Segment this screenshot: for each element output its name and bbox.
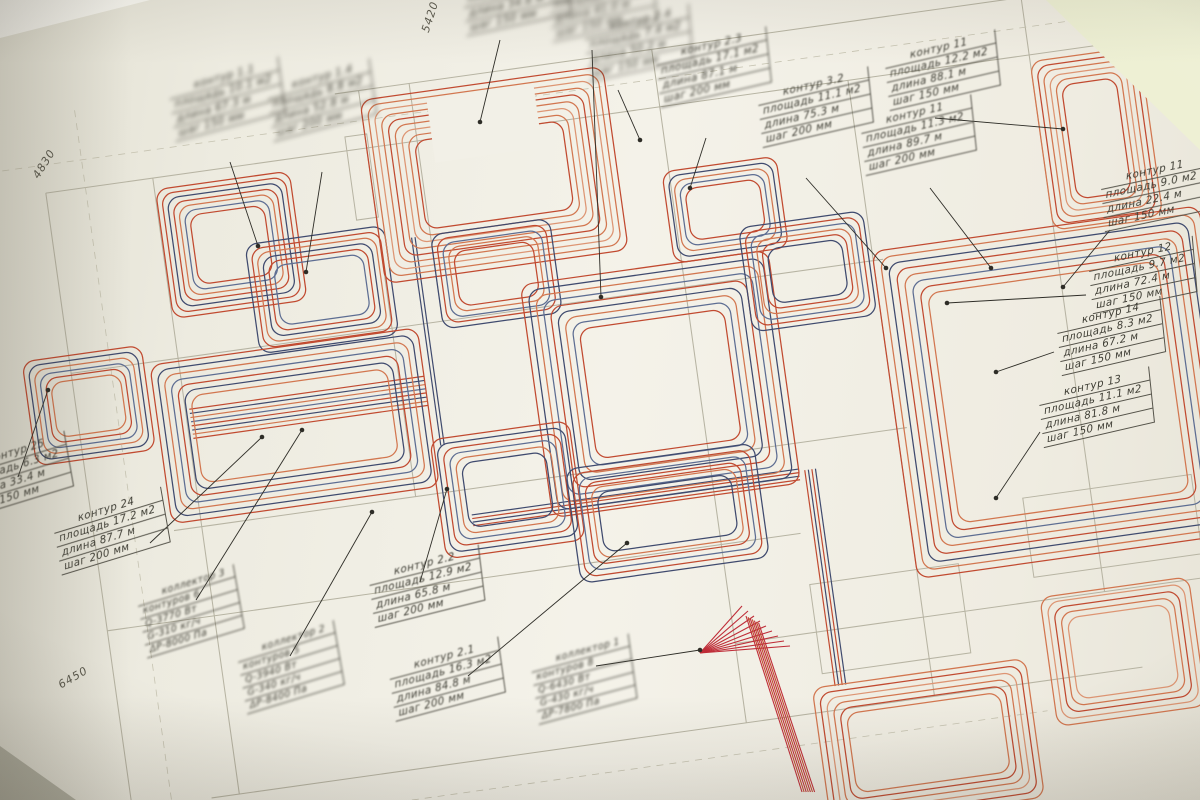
dimension-label: 5420	[419, 0, 441, 34]
tables-layer: контур 1.1площадь 10.1 м2длина 67.3 мшаг…	[0, 0, 1200, 800]
photo-of-heating-plan: контур 1.1площадь 10.1 м2длина 67.3 мшаг…	[0, 0, 1200, 800]
contour-table-annotation: контур 3.2площадь 11.1 м2длина 75.3 мшаг…	[757, 66, 874, 148]
dimension-label: 6450	[56, 664, 90, 691]
contour-table-annotation: контур 13площадь 11.1 м2длина 81.8 мшаг …	[1038, 366, 1155, 448]
dimension-label: 4830	[30, 147, 58, 181]
contour-table-annotation: контур 25площадь 6.3 м2длина 33.4 мшаг 1…	[0, 431, 74, 518]
contour-table-annotation: контур 2.1площадь 16.3 м2длина 84.8 мшаг…	[388, 636, 506, 721]
contour-table-annotation: контур 11площадь 9.0 м2длина 22.4 мшаг 1…	[1100, 154, 1200, 233]
collector-table-annotation: коллектор 1контуров 8Q-6430 ВтG-430 кг/ч…	[530, 634, 638, 725]
contour-table-annotation: контур 14площадь 8.3 м2длина 67.2 мшаг 1…	[1056, 296, 1167, 376]
collector-table-annotation: коллектор 2контуров 5Q-3940 ВтG-340 кг/ч…	[236, 620, 345, 714]
contour-table-annotation: контур 1.4площадь 8.8 м2длина 52.8 мшаг …	[266, 58, 378, 142]
contour-table-annotation: контур 11площадь 11.3 м2длина 89.7 мшаг …	[860, 94, 977, 176]
contour-table-annotation: контур 2.2площадь 12.9 м2длина 65.8 мшаг…	[368, 544, 486, 628]
contour-table-annotation: контур 11площадь 12.2 м2длина 88.1 мшаг …	[884, 29, 1001, 111]
collector-table-annotation: коллектор 3контуров 6Q-3770 ВтG-310 кг/ч…	[136, 564, 245, 658]
contour-table-annotation: контур 24площадь 17.2 м2длина 87.7 мшаг …	[52, 487, 171, 576]
